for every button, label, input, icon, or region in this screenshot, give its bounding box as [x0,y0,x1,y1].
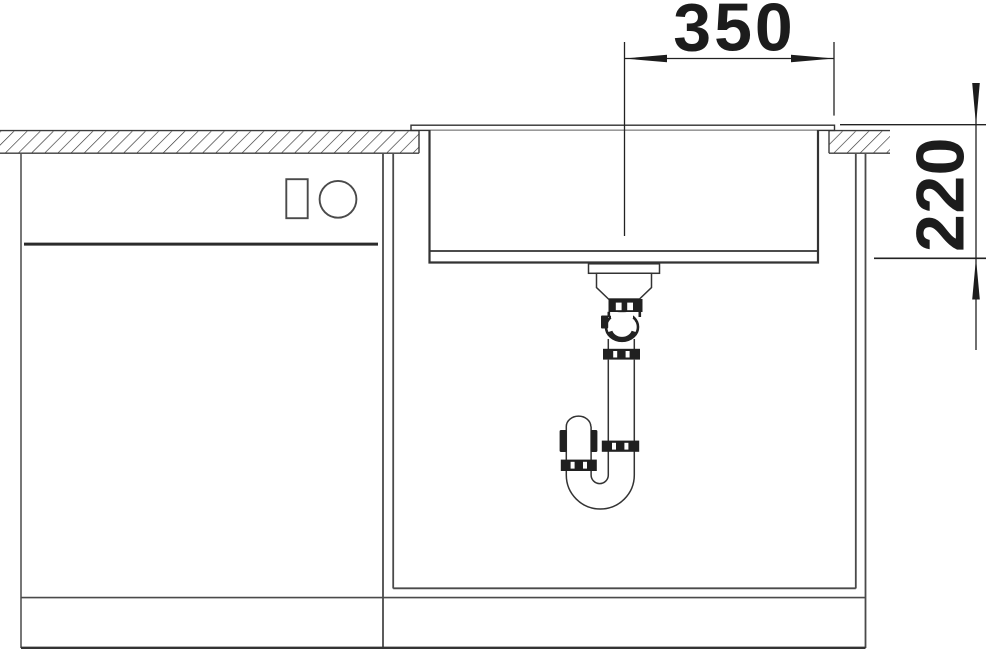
svg-text:220: 220 [903,137,979,252]
svg-text:350: 350 [673,0,795,66]
